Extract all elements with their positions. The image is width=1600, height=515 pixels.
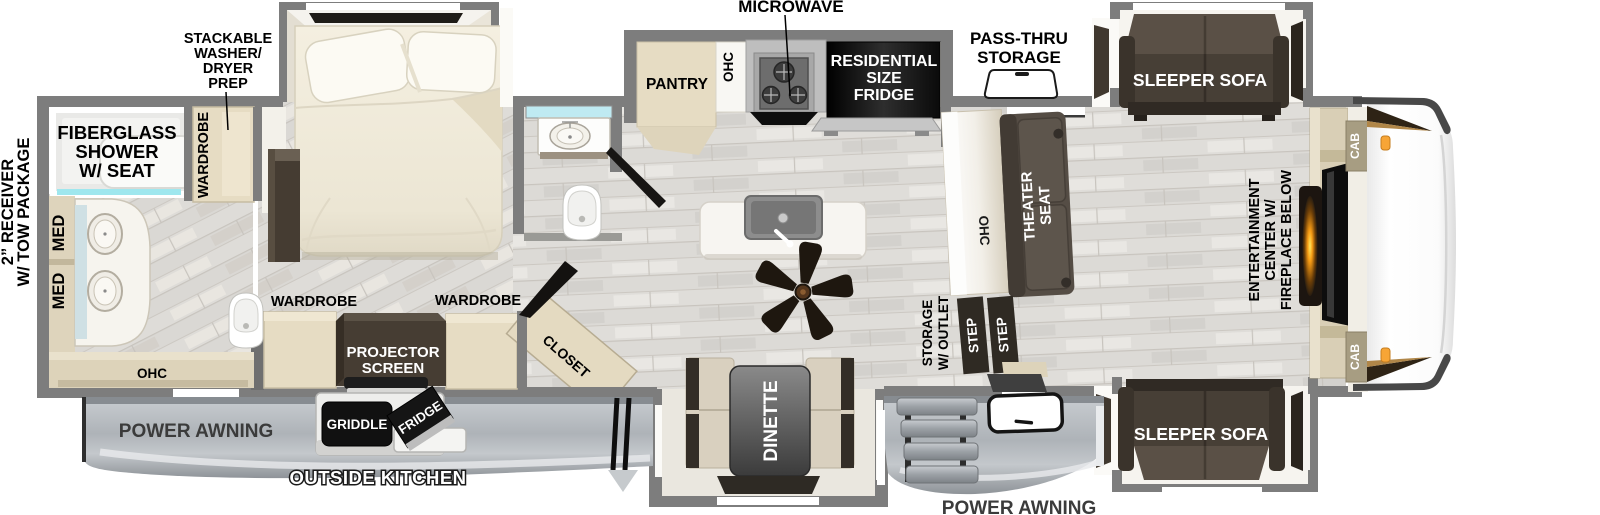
- svg-text:ENTERTAINMENT: ENTERTAINMENT: [1247, 178, 1263, 301]
- svg-text:CAB: CAB: [1348, 133, 1362, 159]
- svg-text:STEP: STEP: [964, 317, 982, 353]
- svg-text:OHC: OHC: [137, 366, 167, 381]
- svg-text:WASHER/: WASHER/: [194, 46, 262, 62]
- svg-text:RESIDENTIAL: RESIDENTIAL: [831, 53, 938, 70]
- svg-text:MED: MED: [50, 273, 68, 310]
- svg-text:STORAGE: STORAGE: [977, 48, 1061, 67]
- svg-text:FIBERGLASS: FIBERGLASS: [57, 122, 176, 143]
- svg-text:FRIDGE: FRIDGE: [854, 87, 915, 104]
- svg-text:PANTRY: PANTRY: [646, 76, 709, 93]
- svg-text:OHC: OHC: [721, 52, 736, 82]
- svg-text:POWER AWNING: POWER AWNING: [119, 421, 273, 442]
- svg-text:SHOWER: SHOWER: [75, 141, 158, 162]
- svg-text:GRIDDLE: GRIDDLE: [327, 417, 388, 432]
- svg-text:SIZE: SIZE: [866, 70, 902, 87]
- svg-text:FIREPLACE BELOW: FIREPLACE BELOW: [1279, 170, 1295, 310]
- svg-text:CAB: CAB: [1348, 344, 1362, 370]
- svg-text:SLEEPER SOFA: SLEEPER SOFA: [1133, 70, 1268, 90]
- svg-text:PASS-THRU: PASS-THRU: [970, 29, 1068, 48]
- svg-text:STORAGE: STORAGE: [920, 300, 935, 367]
- svg-text:STACKABLE: STACKABLE: [184, 31, 273, 47]
- svg-text:STEP: STEP: [994, 317, 1012, 353]
- svg-text:OUTSIDE KITCHEN: OUTSIDE KITCHEN: [289, 467, 466, 488]
- svg-text:WARDROBE: WARDROBE: [435, 293, 522, 309]
- svg-text:MED: MED: [50, 215, 68, 252]
- svg-text:CENTER W/: CENTER W/: [1263, 199, 1279, 280]
- svg-text:W/ TOW PACKAGE: W/ TOW PACKAGE: [15, 138, 33, 287]
- svg-text:POWER AWNING: POWER AWNING: [942, 498, 1096, 515]
- svg-text:SEAT: SEAT: [1036, 186, 1055, 226]
- svg-text:WARDROBE: WARDROBE: [271, 294, 358, 310]
- svg-text:OHC: OHC: [976, 215, 993, 246]
- svg-text:W/ SEAT: W/ SEAT: [79, 160, 155, 181]
- svg-text:DRYER: DRYER: [203, 61, 254, 77]
- svg-text:DINETTE: DINETTE: [761, 380, 782, 461]
- svg-text:W/ OUTLET: W/ OUTLET: [936, 295, 951, 370]
- svg-text:PREP: PREP: [208, 76, 248, 92]
- svg-text:PROJECTOR: PROJECTOR: [346, 344, 439, 361]
- svg-text:WARDROBE: WARDROBE: [196, 112, 212, 199]
- svg-text:MICROWAVE: MICROWAVE: [738, 0, 843, 16]
- svg-text:SLEEPER SOFA: SLEEPER SOFA: [1134, 424, 1269, 444]
- svg-text:SCREEN: SCREEN: [362, 360, 425, 377]
